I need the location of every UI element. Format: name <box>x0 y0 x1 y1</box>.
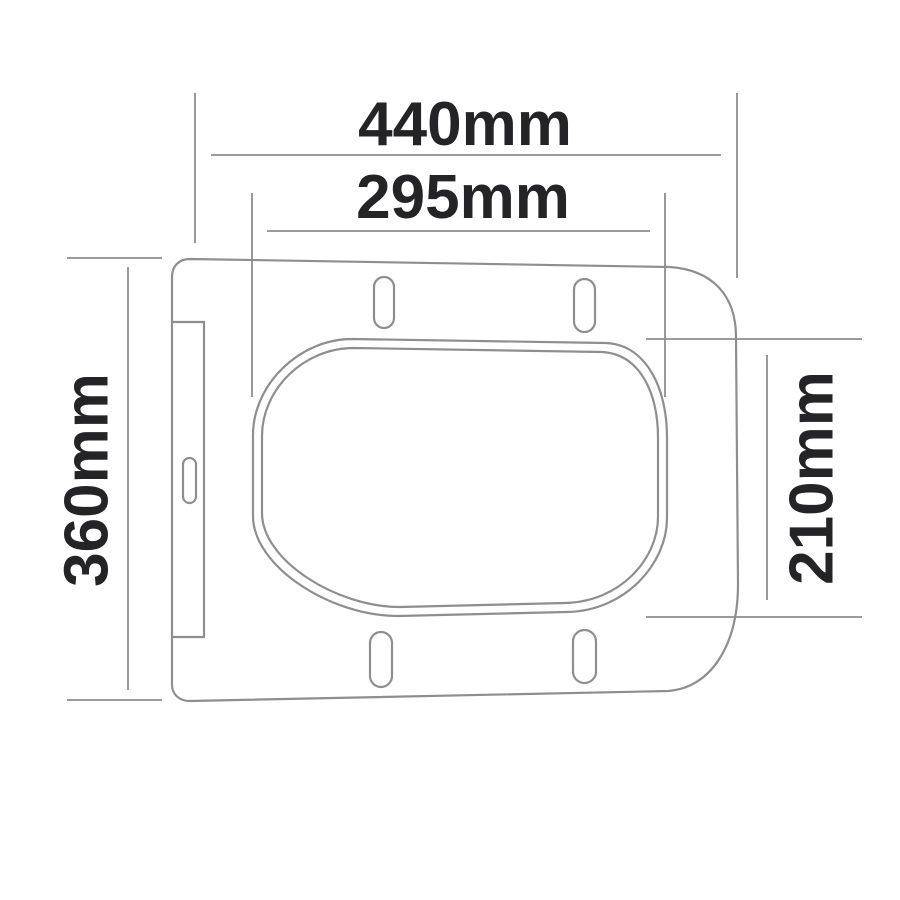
slot-top-right <box>574 279 595 332</box>
dimension-drawing-page: 440mm 295mm 360mm 210mm <box>0 0 900 900</box>
seat-drawing-group <box>172 259 738 701</box>
hinge-flap-outline <box>172 322 204 637</box>
dim-label-opening-width: 295mm <box>356 163 570 232</box>
slot-top-left <box>374 277 394 328</box>
diagram-canvas: 440mm 295mm 360mm 210mm <box>0 0 900 900</box>
slot-bottom-left <box>370 632 392 687</box>
slot-left-hinge <box>183 458 196 503</box>
dim-label-overall-width: 440mm <box>358 90 572 159</box>
seat-opening-inner-ring <box>262 348 658 607</box>
seat-outer-contour <box>172 259 738 701</box>
dim-label-overall-depth: 360mm <box>53 373 122 587</box>
slot-bottom-right <box>573 630 596 683</box>
dim-label-opening-depth: 210mm <box>778 371 847 585</box>
seat-opening-outer-ring <box>253 339 667 616</box>
